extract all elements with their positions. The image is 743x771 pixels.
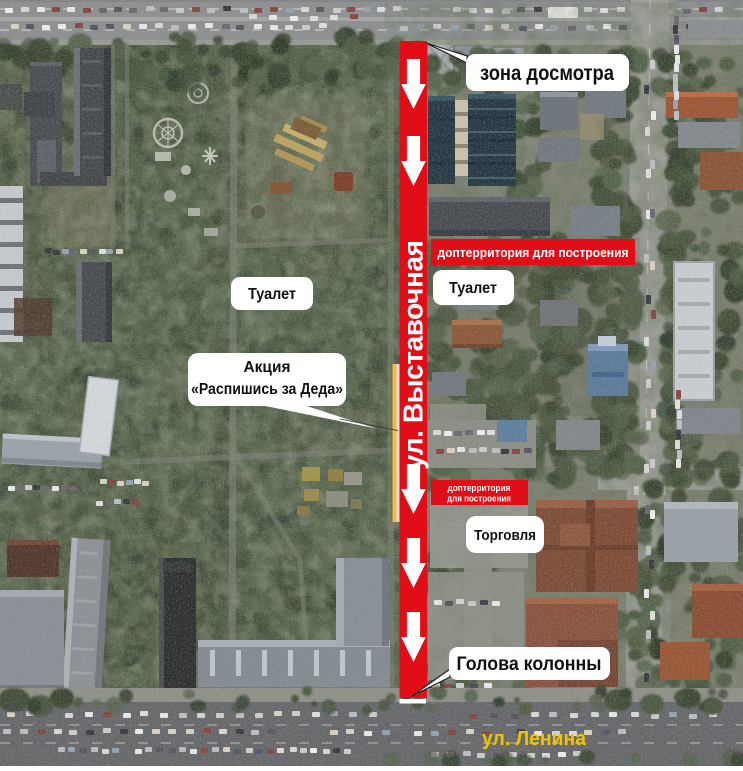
svg-text:ул. Выставочная: ул. Выставочная: [398, 240, 429, 470]
svg-text:доптерритория: доптерритория: [448, 483, 511, 493]
svg-text:Туалет: Туалет: [449, 280, 497, 297]
svg-text:Туалет: Туалет: [248, 286, 296, 303]
svg-text:Торговля: Торговля: [474, 527, 536, 544]
svg-text:для построения: для построения: [447, 494, 511, 504]
svg-text:Голова колонны: Голова колонны: [457, 654, 602, 675]
svg-text:«Распишись за Деда»: «Распишись за Деда»: [191, 381, 343, 398]
svg-text:зона досмотра: зона досмотра: [480, 62, 614, 85]
svg-text:ул. Ленина: ул. Ленина: [482, 727, 587, 750]
svg-text:Акция: Акция: [244, 359, 291, 376]
svg-text:доптерритория для построения: доптерритория для построения: [438, 245, 629, 260]
